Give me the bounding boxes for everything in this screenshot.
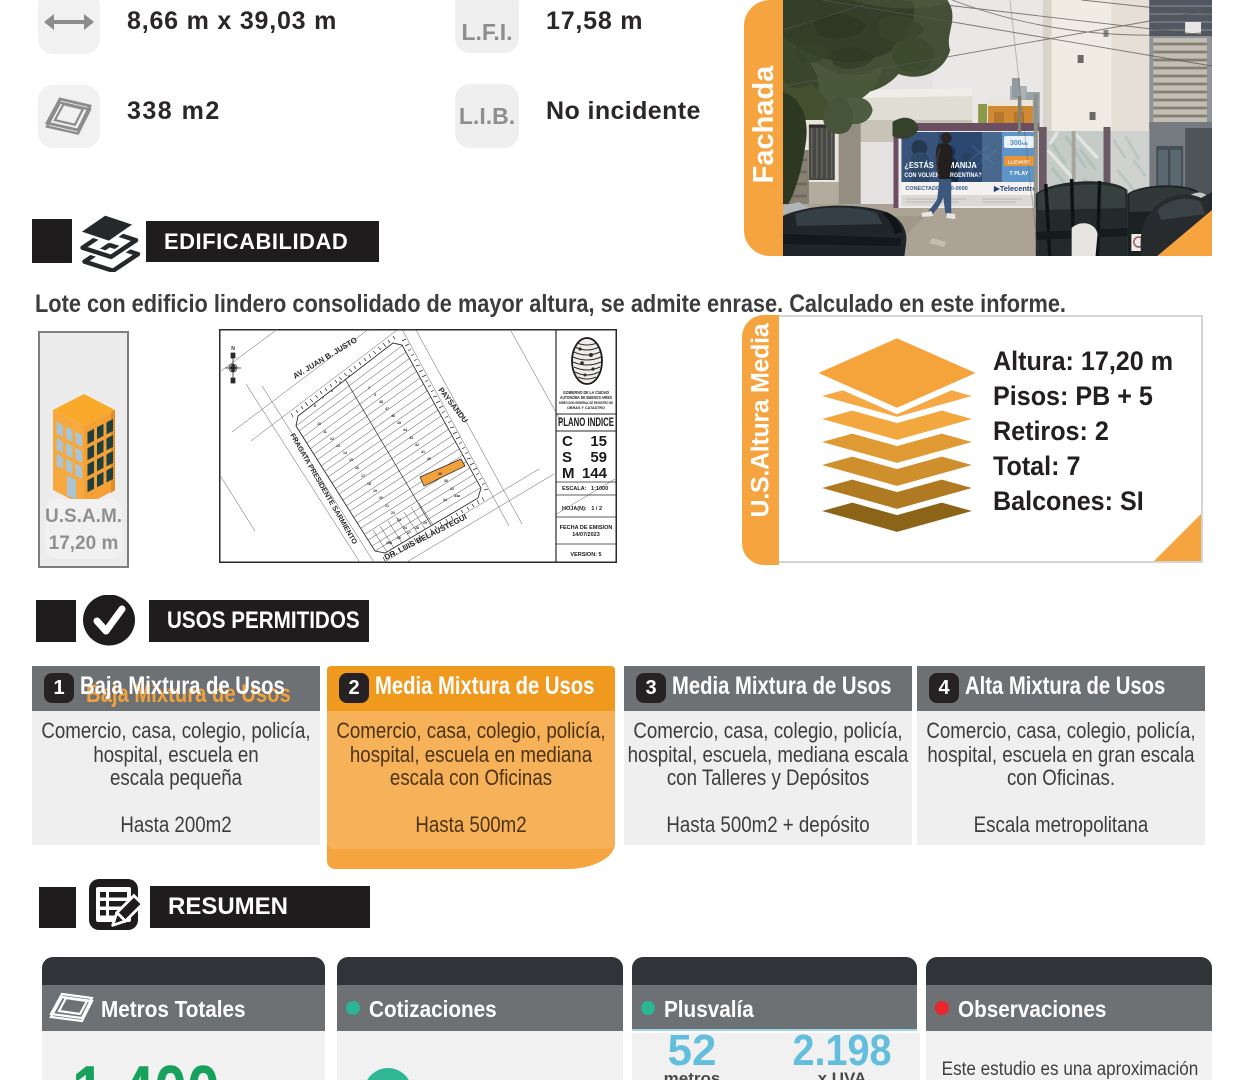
svg-text:44: 44: [403, 428, 407, 432]
svg-text:OBRAS Y CATASTRO: OBRAS Y CATASTRO: [567, 405, 605, 410]
svg-text:N: N: [231, 346, 235, 352]
svg-text:34a: 34a: [454, 494, 461, 498]
svg-text:24: 24: [403, 526, 407, 530]
svg-text:16: 16: [355, 466, 359, 470]
svg-text:41: 41: [421, 450, 425, 454]
svg-text:3: 3: [374, 393, 376, 397]
svg-text:S: S: [562, 449, 572, 466]
svg-text:PLANO INDICE: PLANO INDICE: [558, 417, 614, 429]
svg-text:14: 14: [343, 451, 347, 455]
svg-text:40: 40: [427, 457, 431, 461]
svg-text:6: 6: [331, 389, 333, 393]
svg-text:4: 4: [348, 374, 350, 378]
svg-text:23: 23: [397, 518, 401, 522]
svg-text:CONECTADO 6180-0000: CONECTADO 6180-0000: [905, 186, 967, 192]
svg-text:13: 13: [336, 444, 340, 448]
svg-text:FECHA DE EMISION: FECHA DE EMISION: [560, 525, 613, 531]
svg-text:8: 8: [314, 404, 316, 408]
svg-text:28: 28: [415, 526, 419, 530]
svg-text:M: M: [562, 465, 575, 482]
svg-text:LLEVATE: LLEVATE: [1008, 159, 1031, 165]
svg-text:22: 22: [391, 511, 395, 515]
svg-text:39: 39: [438, 472, 442, 476]
svg-text:2: 2: [368, 386, 370, 390]
svg-text:46: 46: [391, 414, 395, 418]
svg-text:18: 18: [367, 482, 371, 486]
svg-text:10: 10: [317, 422, 321, 426]
svg-text:29: 29: [423, 521, 427, 525]
svg-text:15: 15: [590, 433, 607, 450]
svg-text:27: 27: [407, 531, 411, 535]
svg-text:26: 26: [397, 536, 401, 540]
svg-text:19: 19: [373, 489, 377, 493]
svg-text:31: 31: [450, 487, 454, 491]
svg-text:11: 11: [323, 430, 327, 434]
svg-text:7: 7: [322, 396, 324, 400]
svg-text:47: 47: [385, 407, 389, 411]
svg-text:45: 45: [397, 421, 401, 425]
svg-text:T PLAY: T PLAY: [1009, 171, 1028, 177]
svg-text:59: 59: [590, 449, 607, 466]
svg-text:12: 12: [330, 437, 334, 441]
svg-text:14/07/2023: 14/07/2023: [572, 532, 600, 538]
svg-text:43: 43: [409, 436, 413, 440]
svg-text:48: 48: [379, 400, 383, 404]
svg-text:21: 21: [385, 504, 389, 508]
svg-text:30: 30: [444, 479, 448, 483]
svg-text:34: 34: [443, 498, 447, 502]
svg-text:C: C: [562, 433, 573, 450]
svg-text:HOJA(N): 1 / 2: HOJA(N): 1 / 2: [562, 506, 602, 512]
svg-text:144: 144: [582, 465, 608, 482]
svg-text:25a: 25a: [386, 541, 393, 545]
svg-text:20: 20: [379, 496, 383, 500]
svg-text:42: 42: [415, 443, 419, 447]
svg-text:15: 15: [349, 458, 353, 462]
svg-text:VERSION: 5: VERSION: 5: [570, 552, 601, 558]
svg-text:17: 17: [361, 474, 365, 478]
svg-text:5: 5: [339, 381, 341, 385]
svg-text:ESCALA: 1:1000: ESCALA: 1:1000: [562, 486, 608, 492]
